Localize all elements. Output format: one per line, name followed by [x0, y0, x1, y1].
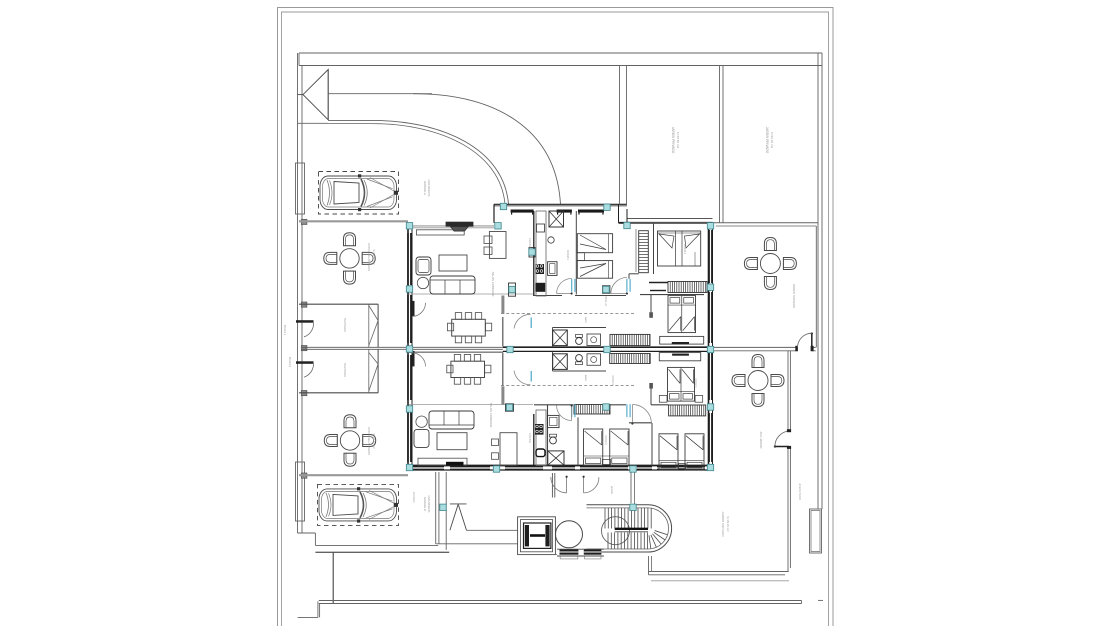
svg-text:CUB.ABIERTA: CUB.ABIERTA: [427, 495, 431, 512]
svg-text:COCINA: COCINA: [528, 238, 532, 248]
svg-text:COCINA: COCINA: [528, 433, 532, 443]
svg-text:GARAJE-B: GARAJE-B: [423, 497, 427, 511]
svg-text:TRASTERO: TRASTERO: [343, 318, 347, 332]
svg-text:DORM 2: DORM 2: [683, 244, 687, 255]
svg-text:PATIO DELANTERO: PATIO DELANTERO: [367, 243, 371, 271]
svg-text:TRASTERO: TRASTERO: [343, 363, 347, 377]
svg-text:DORM 2: DORM 2: [604, 435, 607, 445]
svg-text:DORM 1: DORM 1: [694, 378, 697, 388]
svg-text:ACCESO: ACCESO: [412, 492, 415, 503]
svg-text:S=21.40 m2: S=21.40 m2: [372, 249, 376, 265]
svg-text:JARDIN PRIVADO: JARDIN PRIVADO: [765, 127, 769, 154]
svg-text:JARDIN PRIVADO: JARDIN PRIVADO: [721, 512, 725, 538]
svg-text:ACC.JARDIN: ACC.JARDIN: [759, 432, 763, 449]
svg-text:SALON COMEDOR: SALON COMEDOR: [489, 403, 493, 428]
svg-text:JARDIN PRIVADO: JARDIN PRIVADO: [671, 127, 675, 154]
svg-text:CUB.ABIERTA: CUB.ABIERTA: [427, 179, 431, 196]
svg-text:BAJO 1: BAJO 1: [283, 325, 287, 336]
svg-text:GARAJE-A: GARAJE-A: [423, 181, 427, 195]
svg-text:DORM 3: DORM 3: [611, 375, 614, 385]
svg-text:SALON COMEDOR: SALON COMEDOR: [491, 272, 495, 297]
svg-text:BAJO 2: BAJO 2: [288, 357, 292, 368]
svg-text:BAÑO: BAÑO: [584, 317, 587, 323]
svg-text:porche: porche: [610, 486, 614, 494]
svg-text:PATIO DELANTERO: PATIO DELANTERO: [367, 427, 371, 455]
svg-text:ACERA PERIM.: ACERA PERIM.: [798, 483, 801, 500]
svg-text:DORM 1: DORM 1: [566, 250, 570, 261]
svg-text:JARDIN TRASERO: JARDIN TRASERO: [792, 284, 796, 309]
svg-text:BAÑO: BAÑO: [584, 375, 587, 381]
svg-text:S=52.30 m2: S=52.30 m2: [770, 132, 774, 149]
svg-text:S=39.20 m2: S=39.20 m2: [726, 516, 730, 532]
svg-text:PASILLO: PASILLO: [604, 296, 607, 306]
svg-text:S=48.50 m2: S=48.50 m2: [676, 132, 680, 149]
svg-text:S=21.40 m2: S=21.40 m2: [372, 433, 376, 449]
